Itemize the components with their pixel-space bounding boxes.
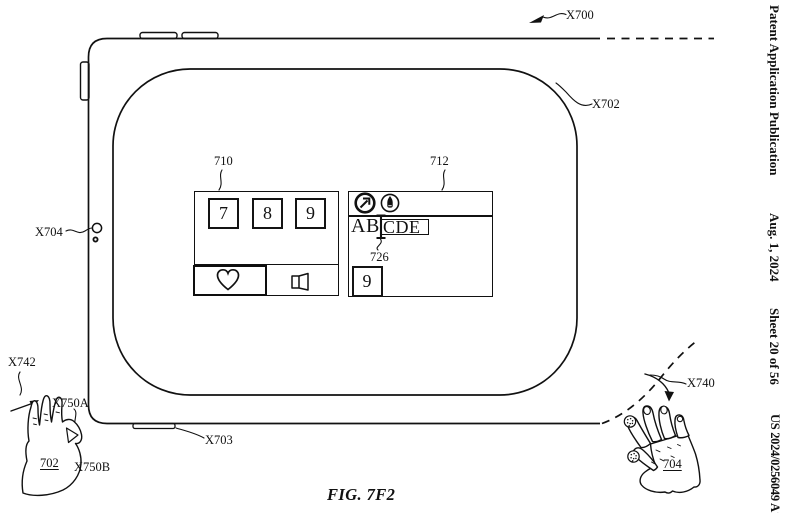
touch-point-thumb [628,451,639,462]
label-712-leader [442,170,445,190]
x700-arrowhead [529,15,544,23]
callout-x742: X742 [8,356,36,369]
camera-dot-small [93,237,97,241]
right-index-finger [627,417,651,448]
patent-header-sheet: Sheet 20 of 56 [766,308,782,385]
callout-710: 710 [214,155,233,168]
display-outline [113,69,577,395]
key-9: 9 [295,198,326,229]
text-window-toolbar [349,192,492,217]
patent-sheet: 7 8 9 AB CDE 9 [0,0,787,513]
right-ring-finger [659,406,676,438]
x700-leader [537,14,566,20]
key-7: 7 [208,198,239,229]
text-field: CDE [380,219,429,235]
x742-arrow [11,404,32,412]
x750b-leader [77,447,81,460]
patent-header: Patent Application Publication Aug. 1, 2… [761,0,787,513]
label-710-leader [219,170,222,190]
text-before-cursor: AB [351,216,380,236]
x740-leader [650,375,686,384]
callout-x740: X740 [687,377,715,390]
side-button [81,62,90,100]
keypad-window: 7 8 9 [194,191,339,296]
callout-x704: X704 [35,226,63,239]
key-9: 9 [352,266,383,297]
left-hand-outline [22,396,82,496]
device-outline [89,39,601,424]
callout-704: 704 [663,458,682,471]
callout-x700: X700 [566,9,594,22]
field-text: CDE [383,217,421,237]
x704-leader [66,228,92,233]
touch-point-index [624,416,635,427]
x742-leader [19,372,22,395]
patent-header-publication: Patent Application Publication [766,5,782,175]
left-hand-creases [33,412,60,425]
x742-arrowhead [30,400,40,408]
fingernail [660,406,668,415]
callout-x702: X702 [592,98,620,111]
right-pinky-finger [675,415,689,438]
x740-arrowhead [665,391,675,402]
patent-header-date: Aug. 1, 2024 [766,213,782,282]
heart-tab [193,265,267,296]
x702-leader [556,83,592,105]
callout-x750a: X750A [52,397,89,410]
callout-x750b: X750B [74,461,110,474]
pinch-opening [67,428,79,443]
left-hand [22,396,82,496]
figure-caption: FIG. 7F2 [327,485,395,505]
fingernail [677,416,682,421]
callout-702: 702 [40,457,59,470]
camera-dot-large [92,223,101,232]
fingernail [643,406,652,416]
right-thumb [633,448,657,471]
x740-arrow [645,374,669,392]
right-hand [624,406,700,493]
key-8: 8 [252,198,283,229]
top-button-left [140,33,177,39]
device-outline-dashed-corner [602,340,698,424]
top-button-right [182,33,218,39]
patent-header-number: US 2024/0256049 A1 [767,414,782,513]
callout-x703: X703 [205,434,233,447]
x703-leader [176,428,204,438]
right-middle-finger [643,406,662,442]
text-window: AB CDE 9 [348,191,493,297]
bottom-connector [133,424,175,429]
callout-712: 712 [430,155,449,168]
stipple-dots [627,418,637,462]
x750a-leader [74,409,76,430]
callout-726: 726 [370,251,389,264]
